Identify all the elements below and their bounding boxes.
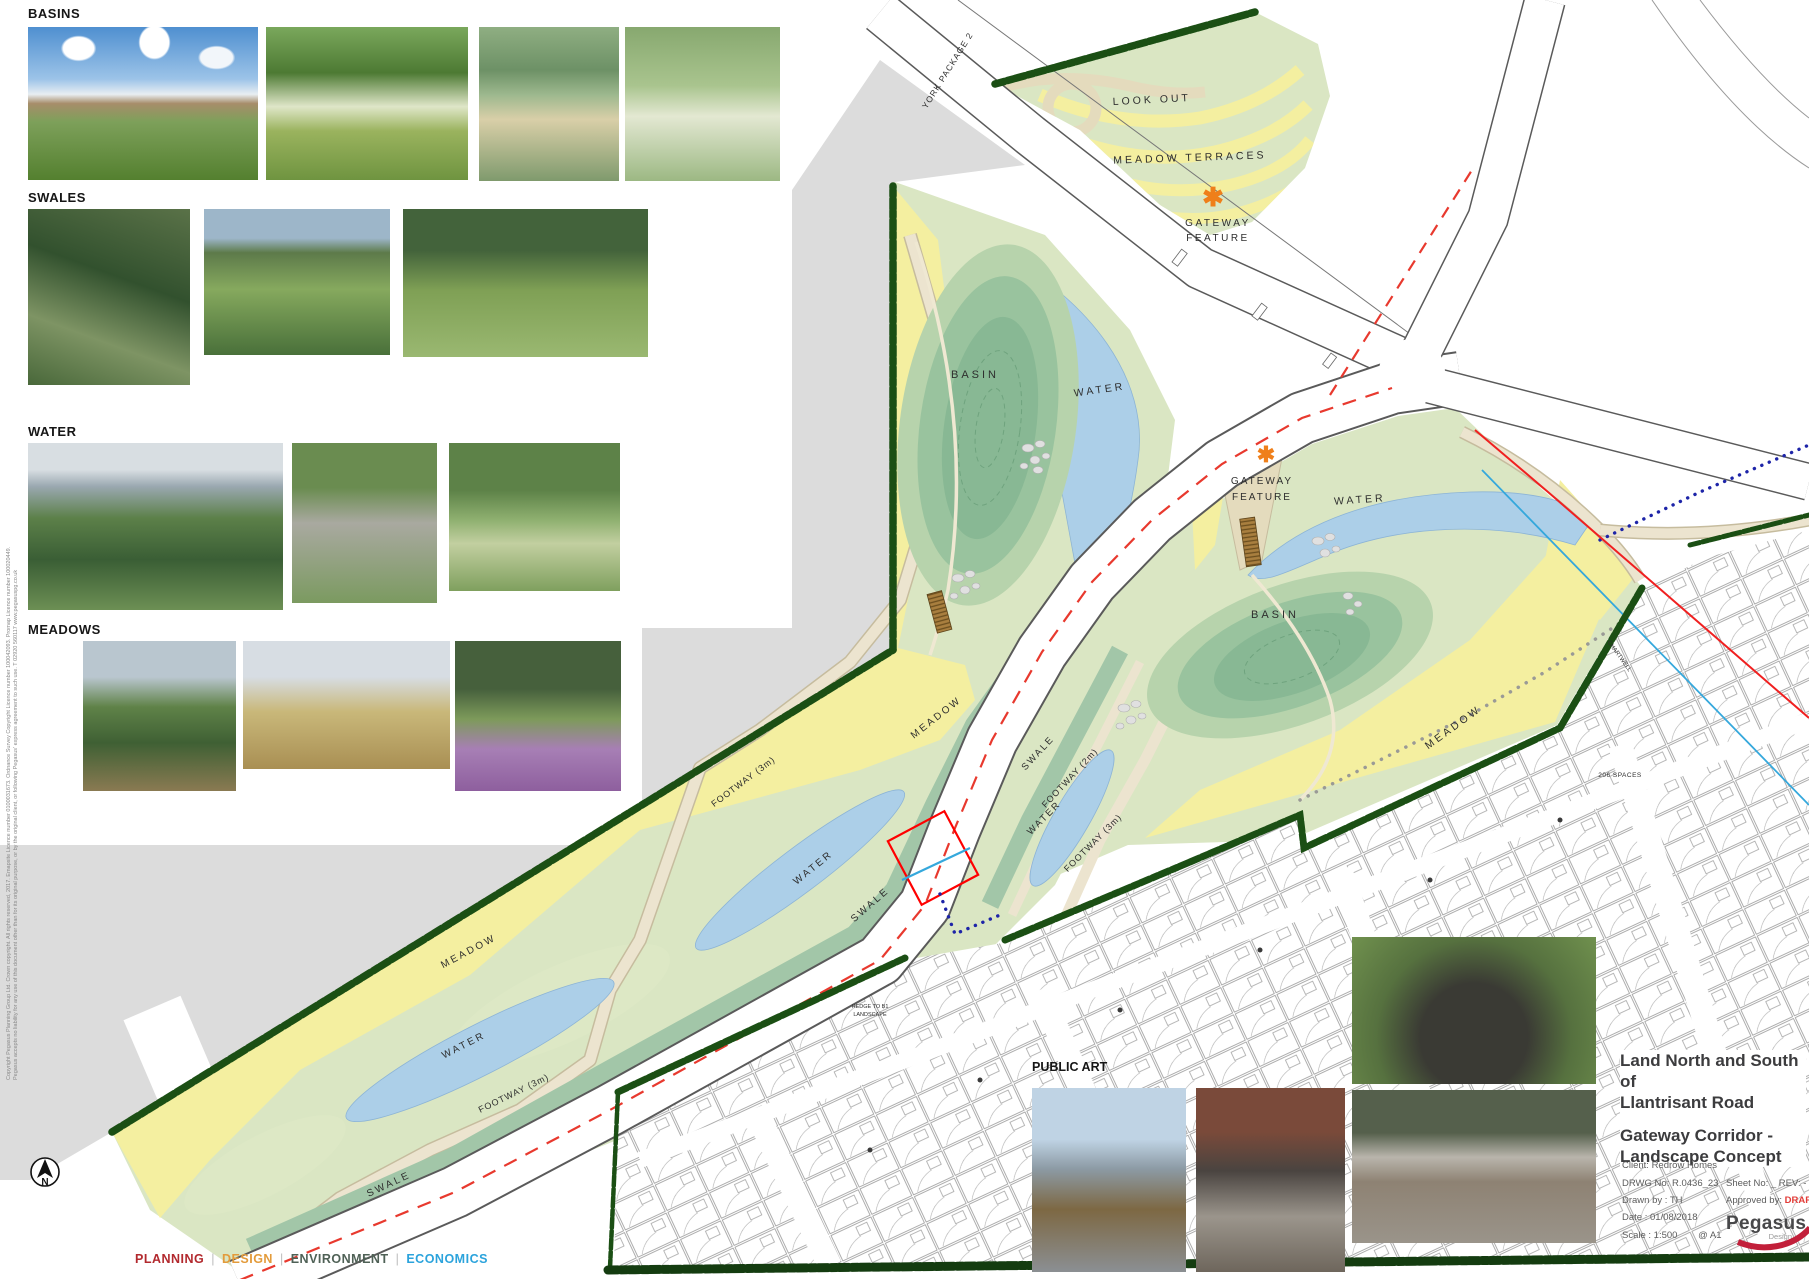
photo-basins-1 (28, 27, 258, 180)
footer-separator: | (396, 1252, 400, 1266)
footer-economics: ECONOMICS (406, 1252, 488, 1266)
footer-planning: PLANNING (135, 1252, 204, 1266)
plan-label-feature-2: FEATURE (1232, 492, 1292, 503)
plan-label-hedge-note-2: LANDSCAPE (853, 1012, 887, 1018)
photo-basins-2 (266, 27, 468, 180)
north-arrow-icon: N (28, 1152, 62, 1198)
section-label-basins: BASINS (28, 6, 80, 21)
project-title-line1: Land North and South of (1620, 1050, 1806, 1092)
footer-disciplines: PLANNING|DESIGN|ENVIRONMENT|ECONOMICS (135, 1252, 488, 1266)
sheet-no-row: Sheet No: _ REV: - (1726, 1178, 1806, 1189)
plan-label-basin-2: BASIN (1251, 609, 1299, 621)
approved-by-label: Approved by: (1726, 1195, 1782, 1206)
section-label-public-art: PUBLIC ART (1032, 1060, 1107, 1074)
section-label-swales: SWALES (28, 190, 86, 205)
photo-water-3 (449, 443, 620, 591)
section-label-water: WATER (28, 424, 76, 439)
plan-label-feature-1: FEATURE (1186, 233, 1249, 244)
gateway-feature-icon: ✱ (1257, 442, 1275, 467)
gateway-feature-icon: ✱ (1202, 182, 1224, 212)
footer-environment: ENVIRONMENT (291, 1252, 389, 1266)
drawn-by-row: Drawn by : TH (1622, 1195, 1683, 1206)
plan-label-parking-spaces: 206 SPACES (1598, 772, 1642, 779)
photo-basins-4 (625, 27, 780, 181)
photo-water-1 (28, 443, 283, 610)
photo-public-art-2 (1196, 1088, 1345, 1272)
photo-swales-3 (403, 209, 648, 357)
photo-swales-1 (28, 209, 190, 385)
footer-design: DESIGN (222, 1252, 273, 1266)
draft-stamp: DRAFT (1785, 1195, 1809, 1206)
photo-public-art-1 (1032, 1088, 1186, 1272)
photo-public-art-3 (1352, 937, 1596, 1084)
title-block: Land North and South of Llantrisant Road… (1620, 1050, 1806, 1167)
drawing-title-line1: Gateway Corridor - (1620, 1125, 1806, 1146)
client-row: Client: Redrow Homes (1622, 1160, 1717, 1171)
photo-swales-2 (204, 209, 390, 355)
scale-label: Scale : 1:500 (1622, 1230, 1677, 1241)
photo-meadows-3 (455, 641, 621, 791)
footer-separator: | (280, 1252, 284, 1266)
paper-size: @ A1 (1698, 1230, 1721, 1241)
pegasus-logo: Pegasus Design (1726, 1216, 1806, 1241)
drawing-sheet: ✱ ✱ YORK PACKAGE 2 LOOK OUT MEADOW TERRA… (0, 0, 1809, 1279)
pegasus-logo-swoosh (1734, 1226, 1809, 1252)
date-row: Date : 01/08/2018 (1622, 1212, 1698, 1223)
section-label-meadows: MEADOWS (28, 622, 101, 637)
landscape-concept-plan: ✱ ✱ YORK PACKAGE 2 LOOK OUT MEADOW TERRA… (0, 0, 1809, 1279)
footer-separator: | (211, 1252, 215, 1266)
photo-basins-3 (479, 27, 619, 181)
plan-label-gateway-1: GATEWAY (1185, 218, 1251, 229)
plan-label-basin-1: BASIN (951, 369, 999, 381)
scale-row: Scale : 1:500 @ A1 (1622, 1230, 1722, 1241)
copyright-text: Copyright Pegasus Planning Group Ltd. Cr… (6, 415, 20, 1080)
photo-water-2 (292, 443, 437, 603)
plan-label-hedge-note-1: HEDGE TO B1 (852, 1004, 889, 1010)
approved-by-row: Approved by: DRAFT (1726, 1195, 1809, 1206)
plan-label-gateway-2: GATEWAY (1231, 476, 1293, 487)
photo-meadows-1 (83, 641, 236, 791)
photo-public-art-4 (1352, 1090, 1596, 1243)
drwg-no-row: DRWG No: R.0436_23 (1622, 1178, 1718, 1189)
copyright-line-1: Copyright Pegasus Planning Group Ltd. Cr… (6, 415, 13, 1080)
photo-meadows-2 (243, 641, 450, 769)
project-title-line2: Llantrisant Road (1620, 1092, 1806, 1113)
copyright-line-2: Pegasus accepts no liability for any use… (13, 415, 20, 1080)
north-letter: N (41, 1177, 48, 1188)
